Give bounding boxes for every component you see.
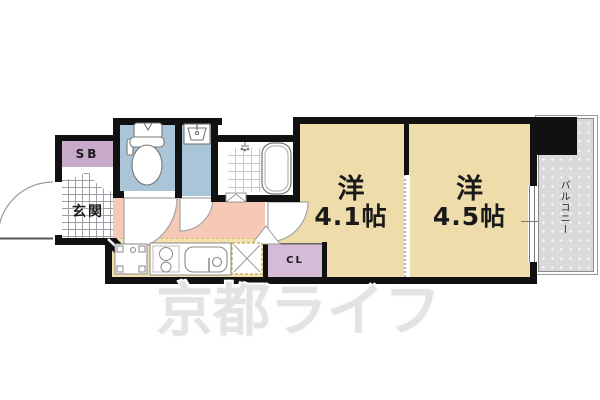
floor-plan: SB 玄関 洋 4.1帖 洋 4.5帖 CL バルコニー 京都ライフ xyxy=(0,0,600,400)
balcony-label: バルコニー xyxy=(556,180,571,252)
bathroom-tile-floor xyxy=(228,148,262,192)
washroom-floor xyxy=(182,125,211,196)
shoe-box-label: SB xyxy=(62,147,113,161)
watermark-text: 京都ライフ xyxy=(156,265,441,347)
room1-size-label: 4.1帖 xyxy=(296,197,406,233)
hallway-floor xyxy=(113,198,265,243)
toilet-room-floor xyxy=(120,125,175,191)
entrance-label: 玄関 xyxy=(63,201,113,221)
room2-size-label: 4.5帖 xyxy=(407,197,532,233)
front-door-swing-icon xyxy=(0,182,53,239)
